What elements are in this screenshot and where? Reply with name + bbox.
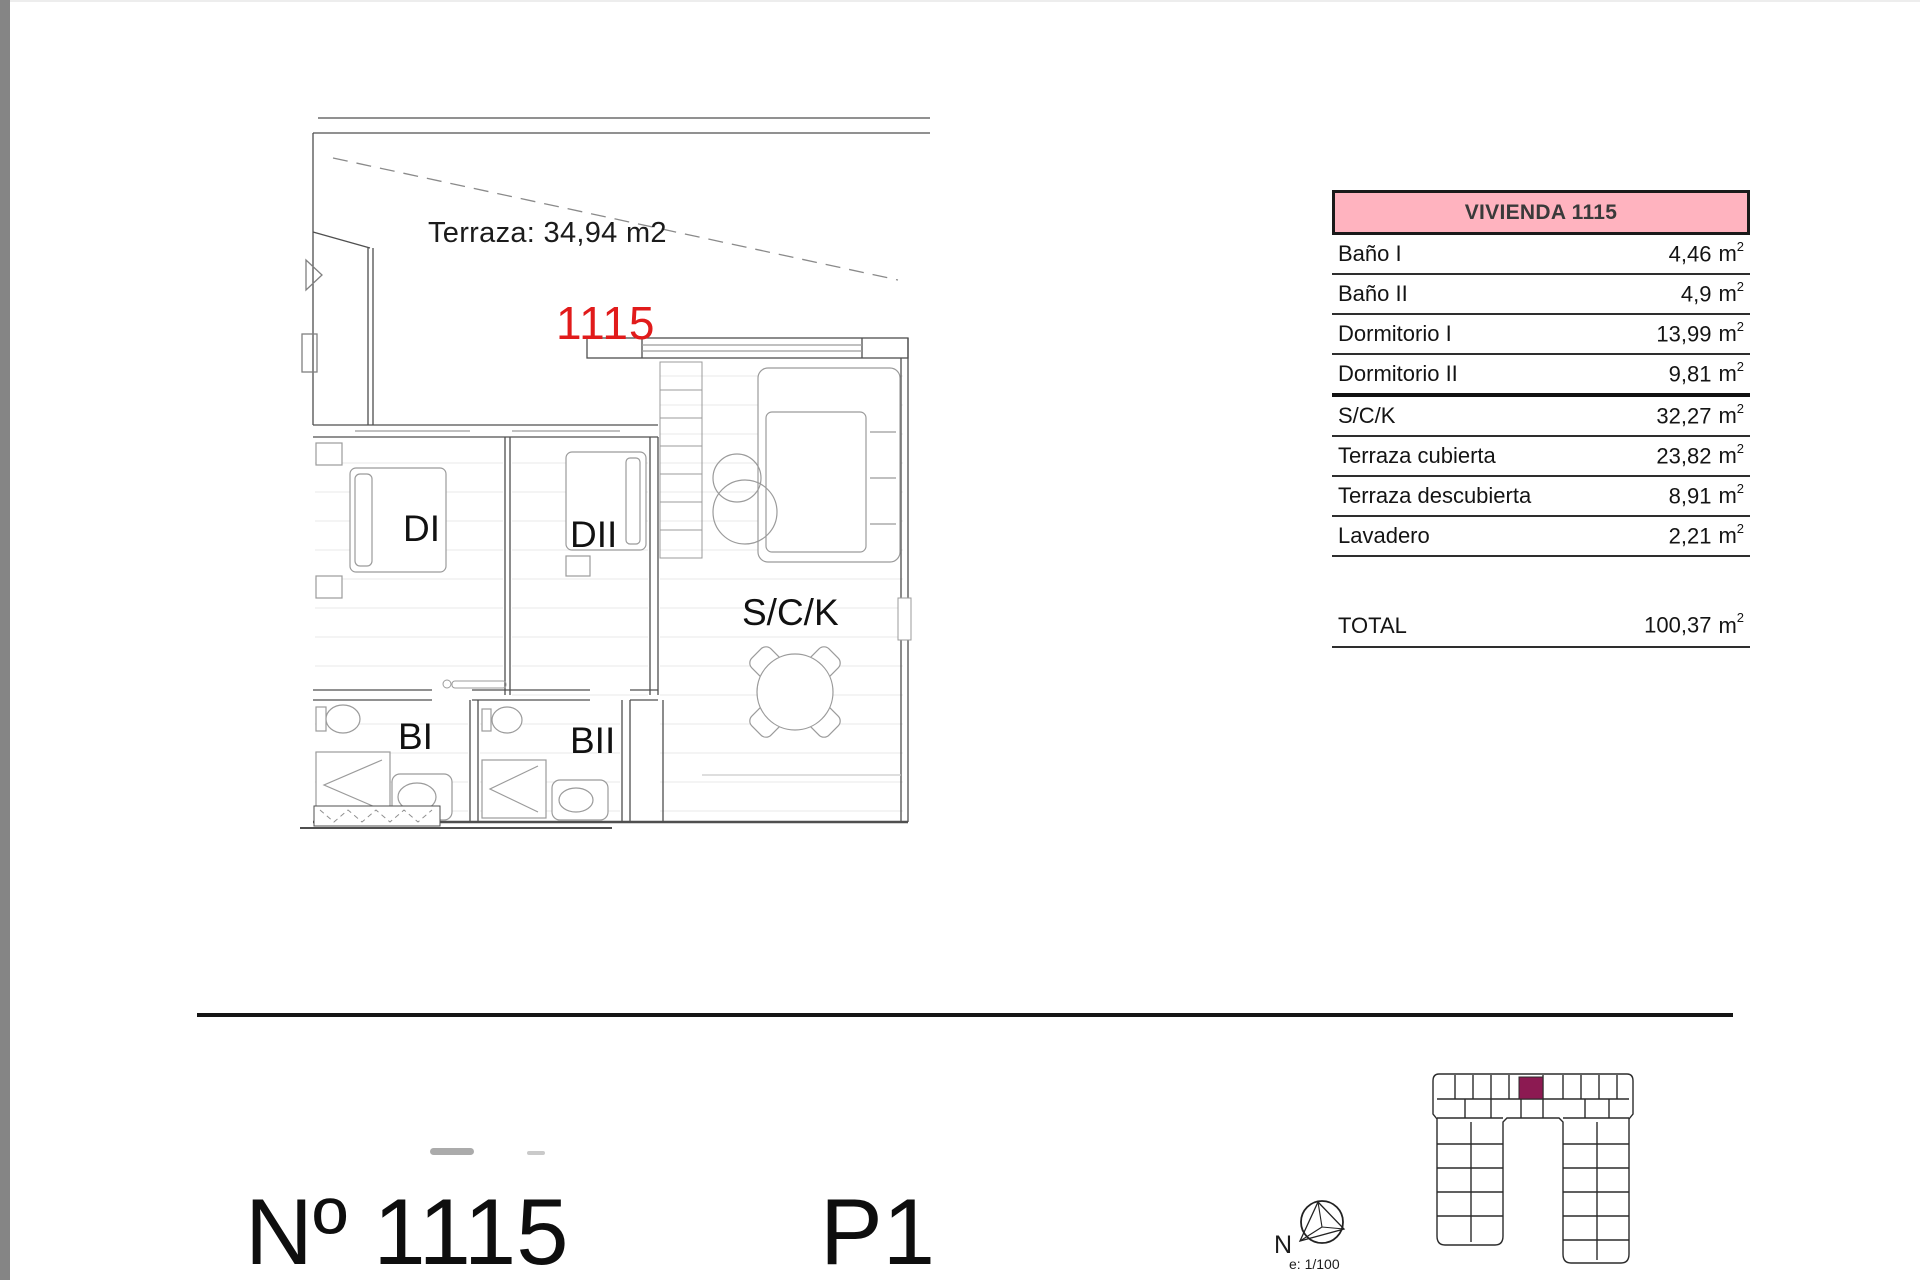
area-table-title: VIVIENDA 1115 bbox=[1332, 190, 1750, 235]
room-name: Dormitorio II bbox=[1338, 361, 1458, 387]
table-row: Terraza cubierta 23,82m2 bbox=[1332, 437, 1750, 477]
total-area: 100,37m2 bbox=[1644, 612, 1744, 638]
room-label-dormitorio1: DI bbox=[403, 508, 440, 550]
room-label-dormitorio2: DII bbox=[570, 514, 617, 556]
room-area: 4,46m2 bbox=[1669, 241, 1744, 267]
room-name: S/C/K bbox=[1338, 403, 1395, 429]
room-name: Baño I bbox=[1338, 241, 1402, 267]
highlighted-unit-marker bbox=[1519, 1077, 1543, 1099]
table-total-row: TOTAL 100,37m2 bbox=[1332, 605, 1750, 648]
room-name: Baño II bbox=[1338, 281, 1408, 307]
site-plan-locator bbox=[1425, 1066, 1655, 1271]
table-row: Lavadero 2,21m2 bbox=[1332, 517, 1750, 557]
room-name: Terraza cubierta bbox=[1338, 443, 1496, 469]
table-row: S/C/K 32,27m2 bbox=[1332, 397, 1750, 437]
room-area: 4,9m2 bbox=[1681, 281, 1744, 307]
room-label-bathroom2: BII bbox=[570, 720, 615, 762]
room-area: 13,99m2 bbox=[1656, 321, 1744, 347]
terrace-area-label: Terraza: 34,94 m2 bbox=[428, 217, 667, 250]
footer-floor-number: P1 bbox=[820, 1178, 935, 1280]
table-spacer bbox=[1332, 557, 1750, 605]
unit-number-red: 1115 bbox=[556, 296, 656, 350]
area-table: VIVIENDA 1115 Baño I 4,46m2 Baño II 4,9m… bbox=[1332, 190, 1750, 648]
room-label-salon-kitchen: S/C/K bbox=[742, 592, 839, 634]
scale-note: e: 1/100 bbox=[1289, 1256, 1340, 1272]
room-area: 2,21m2 bbox=[1669, 523, 1744, 549]
footer-divider-line bbox=[197, 1013, 1733, 1017]
room-area: 32,27m2 bbox=[1656, 403, 1744, 429]
floor-plan-drawing bbox=[300, 95, 940, 840]
table-row: Terraza descubierta 8,91m2 bbox=[1332, 477, 1750, 517]
footer-unit-number: Nº 1115 bbox=[245, 1178, 569, 1280]
table-row: Baño II 4,9m2 bbox=[1332, 275, 1750, 315]
table-row: Baño I 4,46m2 bbox=[1332, 235, 1750, 275]
table-row: Dormitorio II 9,81m2 bbox=[1332, 355, 1750, 397]
scan-smudge bbox=[430, 1148, 474, 1155]
room-name: Dormitorio I bbox=[1338, 321, 1452, 347]
room-name: Lavadero bbox=[1338, 523, 1430, 549]
room-area: 23,82m2 bbox=[1656, 443, 1744, 469]
room-label-bathroom1: BI bbox=[398, 716, 433, 758]
plan-sheet: Terraza: 34,94 m2 1115 DI DII S/C/K BI B… bbox=[0, 0, 1920, 1280]
room-area: 9,81m2 bbox=[1669, 361, 1744, 387]
room-name: Terraza descubierta bbox=[1338, 483, 1531, 509]
total-label: TOTAL bbox=[1338, 613, 1407, 639]
scan-smudge bbox=[527, 1151, 545, 1155]
top-edge-line bbox=[0, 0, 1920, 2]
room-area: 8,91m2 bbox=[1669, 483, 1744, 509]
left-scan-edge bbox=[0, 0, 10, 1280]
table-row: Dormitorio I 13,99m2 bbox=[1332, 315, 1750, 355]
